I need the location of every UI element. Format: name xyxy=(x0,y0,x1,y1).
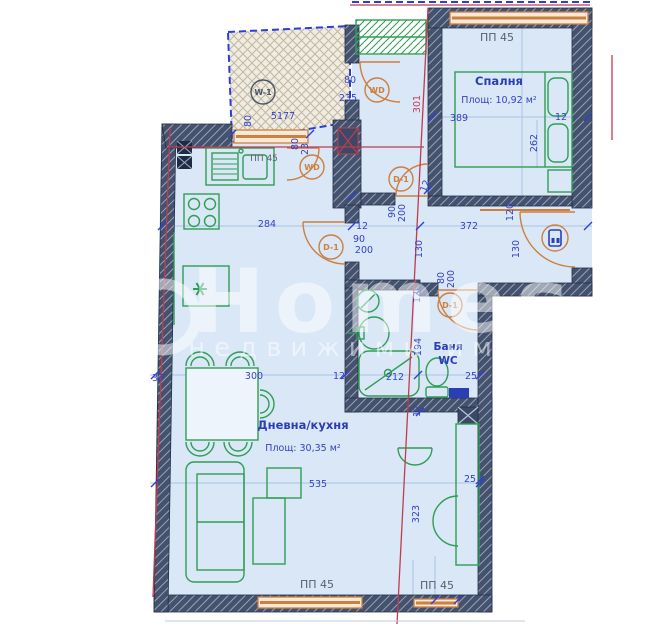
window-type-label: ПП 45 xyxy=(420,579,454,592)
window-type-label: ПП 45 xyxy=(300,578,334,591)
window-type-label: ПП 45 xyxy=(250,154,278,164)
top-wardrobe xyxy=(356,20,426,54)
door-tag-label: WD xyxy=(304,163,320,172)
dimension-label: 25 xyxy=(465,371,477,382)
dimension-label: 535 xyxy=(309,479,327,490)
floor-plan-drawing: W-1WDWDD-1D-1D-1 38912262301802358051778… xyxy=(0,0,659,626)
dimension-label: 90 xyxy=(353,234,365,245)
room-name: Дневна/кухня xyxy=(257,418,348,432)
dimension-label: 262 xyxy=(529,134,540,152)
room-name: Спалня xyxy=(475,74,523,88)
door-tag-label: WD xyxy=(369,86,385,95)
dimension-label: 323 xyxy=(411,505,422,523)
dimension-label: 200 xyxy=(397,204,408,222)
dimension-label: 235 xyxy=(339,93,357,104)
dimension-label: 372 xyxy=(460,221,478,232)
dimension-label: 25 xyxy=(464,474,476,485)
dimension-label: 33 xyxy=(152,373,164,384)
door-tag-label: D-1 xyxy=(393,175,409,184)
floor-plan-page: W-1WDWDD-1D-1D-1 38912262301802358051778… xyxy=(0,0,659,626)
control-panel xyxy=(449,388,469,398)
window-type-label: ПП 45 xyxy=(480,31,514,44)
dimension-label: 300 xyxy=(245,371,263,382)
door-tag-label: W-1 xyxy=(254,88,272,97)
dimension-label: 12 xyxy=(412,405,423,417)
watermark-tagline: недвижими имоти xyxy=(188,333,576,363)
dimension-label: 12 xyxy=(555,112,567,123)
dimension-label: 284 xyxy=(258,219,276,230)
dimension-label: 12 xyxy=(333,371,345,382)
dimension-label: 301 xyxy=(412,95,423,113)
dimension-label: 80 xyxy=(344,75,356,86)
dimension-label: 389 xyxy=(450,113,468,124)
dimension-label: 120 xyxy=(505,203,516,221)
room-area: Площ: 30,35 м² xyxy=(265,443,341,454)
dimension-label: 5177 xyxy=(271,111,295,122)
wall-bedroom-left xyxy=(428,28,442,196)
wall-kitchen-top xyxy=(162,124,232,148)
dimension-label: 12 xyxy=(356,221,368,232)
wall-right-upper xyxy=(572,8,592,208)
dimension-label: 80 xyxy=(243,115,254,127)
wall-bedroom-bottom xyxy=(428,196,572,206)
room-area: Площ: 10,92 м² xyxy=(461,95,537,106)
dimension-label: 23 xyxy=(300,143,311,155)
dimension-label: 212 xyxy=(386,372,404,383)
